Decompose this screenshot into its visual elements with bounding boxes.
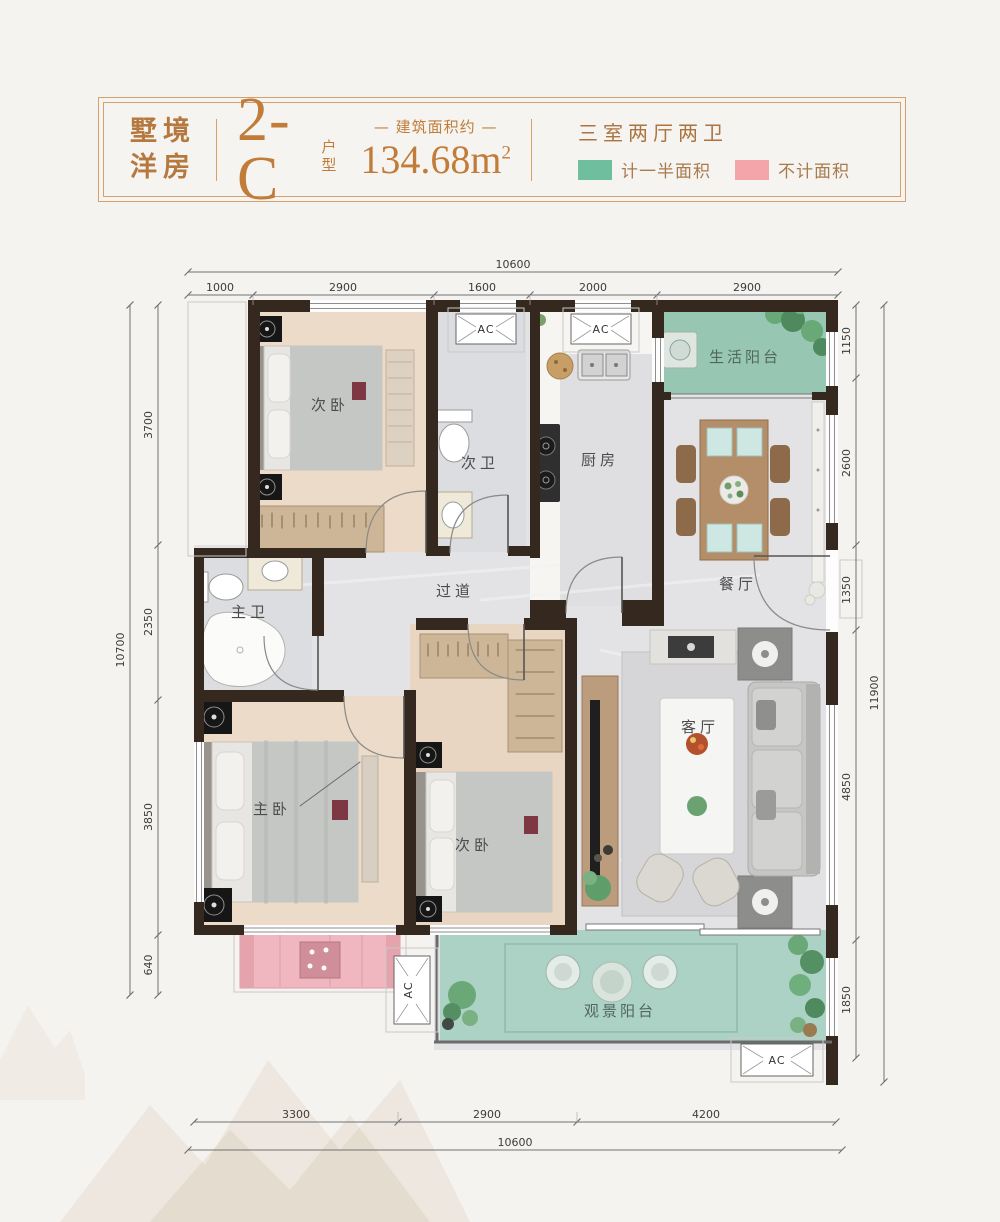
ac-unit-top-2: AC bbox=[571, 314, 631, 344]
ac-unit-top-1: AC bbox=[456, 314, 516, 344]
header-divider-1 bbox=[216, 119, 217, 181]
half-area-label: 计一半面积 bbox=[621, 157, 711, 182]
dim-left-seg-3: 640 bbox=[142, 955, 155, 976]
header-divider-2 bbox=[531, 119, 532, 181]
dim-top-seg-3: 2000 bbox=[579, 281, 607, 294]
sofa-back bbox=[806, 684, 820, 874]
dim-bottom-seg-0: 3300 bbox=[282, 1108, 310, 1121]
half-area-color bbox=[578, 160, 612, 180]
dim-top-seg-2: 1600 bbox=[468, 281, 496, 294]
wall-bath2-bottom-a bbox=[426, 546, 450, 556]
no-area-swatch bbox=[735, 160, 769, 180]
ac-label: AC bbox=[592, 323, 609, 336]
accent-pillow bbox=[524, 816, 538, 834]
label-bedroom-top: 次卧 bbox=[311, 396, 349, 414]
layout-description: 三室两厅两卫 bbox=[578, 117, 874, 146]
label-bedroom-master: 主卧 bbox=[253, 800, 291, 818]
dim-bottom-total: 10600 bbox=[498, 1136, 533, 1149]
bed-bench bbox=[362, 756, 378, 882]
wardrobe bbox=[420, 634, 508, 678]
legend-item-half-area: 计一半面积 bbox=[578, 157, 711, 182]
dim-left-seg-2: 3850 bbox=[142, 803, 155, 831]
cutting-board bbox=[547, 353, 573, 379]
ac-label: AC bbox=[477, 323, 494, 336]
dim-left-seg-1: 2350 bbox=[142, 608, 155, 636]
unit-code: 2-C bbox=[237, 91, 316, 209]
toilet-tank bbox=[436, 410, 472, 422]
wall-bath2-kitchen-divider bbox=[530, 300, 540, 558]
placemat bbox=[737, 524, 762, 552]
toilet bbox=[209, 574, 243, 600]
label-corridor: 过道 bbox=[436, 582, 474, 600]
wall-master-bath-right bbox=[312, 548, 324, 636]
label-life-balcony: 生活阳台 bbox=[709, 348, 781, 366]
sink bbox=[442, 502, 464, 528]
accent-pillow bbox=[332, 800, 348, 820]
dim-left-seg-0: 3700 bbox=[142, 411, 155, 439]
area-value: 134.68m2 bbox=[360, 137, 511, 183]
placemat bbox=[707, 524, 732, 552]
label-dining: 餐厅 bbox=[719, 575, 757, 593]
wall-bedroom2-top-a bbox=[416, 618, 468, 630]
wall-left-upper bbox=[248, 300, 260, 558]
ac-label: AC bbox=[402, 981, 415, 998]
unit-type-char-2: 型 bbox=[321, 157, 336, 174]
dim-right-seg-4: 1850 bbox=[840, 986, 853, 1014]
fruit-plate bbox=[686, 733, 708, 755]
wall-bedroom-top-bottom bbox=[248, 548, 366, 558]
dim-top-seg-0: 1000 bbox=[206, 281, 234, 294]
throw-pillow bbox=[756, 700, 776, 730]
area-label: — 建筑面积约 — bbox=[360, 116, 511, 137]
dim-right-seg-3: 4850 bbox=[840, 773, 853, 801]
label-kitchen: 厨房 bbox=[581, 451, 619, 469]
wall-kitchen-right-a bbox=[652, 300, 664, 338]
wall-master-top-a bbox=[194, 690, 344, 702]
legend: 计一半面积 不计面积 bbox=[578, 157, 874, 182]
ac-unit-bottom-left: AC bbox=[394, 956, 430, 1024]
placemat bbox=[707, 428, 732, 456]
pillow bbox=[268, 410, 290, 458]
throw-pillow bbox=[756, 790, 776, 820]
pillow bbox=[430, 780, 454, 832]
wall-life-balcony-stub-b bbox=[812, 392, 826, 400]
watermark-mountains bbox=[0, 1005, 470, 1222]
label-living: 客厅 bbox=[681, 718, 719, 736]
balcony-plant bbox=[788, 935, 808, 955]
legend-item-no-area: 不计面积 bbox=[735, 157, 850, 182]
label-view-balcony: 观景阳台 bbox=[584, 1002, 656, 1020]
dining-chair bbox=[676, 498, 696, 536]
dining-chair bbox=[676, 445, 696, 483]
pillow bbox=[216, 822, 244, 880]
label-bedroom-second: 次卧 bbox=[455, 836, 493, 854]
wall-life-balcony-stub-a bbox=[657, 392, 671, 400]
bedroom-second-furniture bbox=[414, 634, 562, 922]
table-plant bbox=[687, 796, 707, 816]
accent-pillow bbox=[352, 382, 366, 400]
unit-type-char-1: 户 bbox=[321, 139, 336, 156]
wall-right bbox=[826, 300, 838, 1062]
wardrobe bbox=[508, 640, 562, 752]
dim-top-total: 10600 bbox=[496, 258, 531, 271]
dim-left-total: 10700 bbox=[114, 633, 127, 668]
unit-type-label: 户 型 bbox=[321, 139, 336, 174]
ac-label: AC bbox=[768, 1054, 785, 1067]
no-area-label: 不计面积 bbox=[778, 157, 850, 182]
placemat bbox=[737, 428, 762, 456]
sofa-cushion bbox=[752, 812, 802, 870]
half-area-swatch bbox=[578, 160, 612, 180]
dim-bottom-seg-2: 4200 bbox=[692, 1108, 720, 1121]
ac-unit-bottom-right: AC bbox=[741, 1044, 813, 1076]
area-number: 134.68m bbox=[360, 137, 501, 182]
header-inner: 墅境 洋房 2-C 户 型 — 建筑面积约 — 134.68m2 三室两厅两卫 … bbox=[103, 102, 901, 197]
pillow bbox=[430, 838, 454, 890]
centerpiece bbox=[720, 476, 748, 504]
dining-chair bbox=[770, 498, 790, 536]
label-bath-master: 主卫 bbox=[231, 603, 269, 621]
brand-line-2: 洋房 bbox=[130, 150, 196, 185]
dim-top-seg-1: 2900 bbox=[329, 281, 357, 294]
brand-name: 墅境 洋房 bbox=[130, 114, 196, 184]
pillow bbox=[268, 354, 290, 402]
wall-master-bedroom2-divider bbox=[404, 690, 416, 935]
floor-view-balcony bbox=[440, 930, 826, 1042]
dim-right-total: 11900 bbox=[868, 676, 881, 711]
sink bbox=[262, 561, 288, 581]
dim-right-seg-1: 2600 bbox=[840, 449, 853, 477]
bay-window-seat bbox=[234, 930, 406, 992]
dining-chair bbox=[770, 445, 790, 483]
header-right-block: 三室两厅两卫 计一半面积 不计面积 bbox=[578, 117, 874, 182]
pillow bbox=[216, 752, 244, 810]
wall-balcony-corner bbox=[826, 1040, 838, 1085]
dim-bottom-seg-1: 2900 bbox=[473, 1108, 501, 1121]
wall-bedroom2-right bbox=[565, 618, 577, 935]
dim-top-seg-4: 2900 bbox=[733, 281, 761, 294]
dim-right-seg-0: 1150 bbox=[840, 327, 853, 355]
no-area-color bbox=[735, 160, 769, 180]
brand-line-1: 墅境 bbox=[130, 114, 196, 149]
bay-seat-table bbox=[300, 942, 340, 978]
area-block: — 建筑面积约 — 134.68m2 bbox=[360, 116, 511, 183]
header-frame: 墅境 洋房 2-C 户 型 — 建筑面积约 — 134.68m2 三室两厅两卫 … bbox=[98, 97, 906, 202]
label-bath-second: 次卫 bbox=[461, 454, 499, 472]
wall-bedroom-bath-divider bbox=[426, 300, 438, 548]
wall-kitchen-right-b bbox=[652, 382, 664, 626]
area-exponent: 2 bbox=[502, 143, 512, 164]
tv bbox=[590, 700, 600, 880]
dim-right-seg-2: 1350 bbox=[840, 576, 853, 604]
bench bbox=[386, 350, 414, 466]
wardrobe bbox=[254, 506, 384, 552]
